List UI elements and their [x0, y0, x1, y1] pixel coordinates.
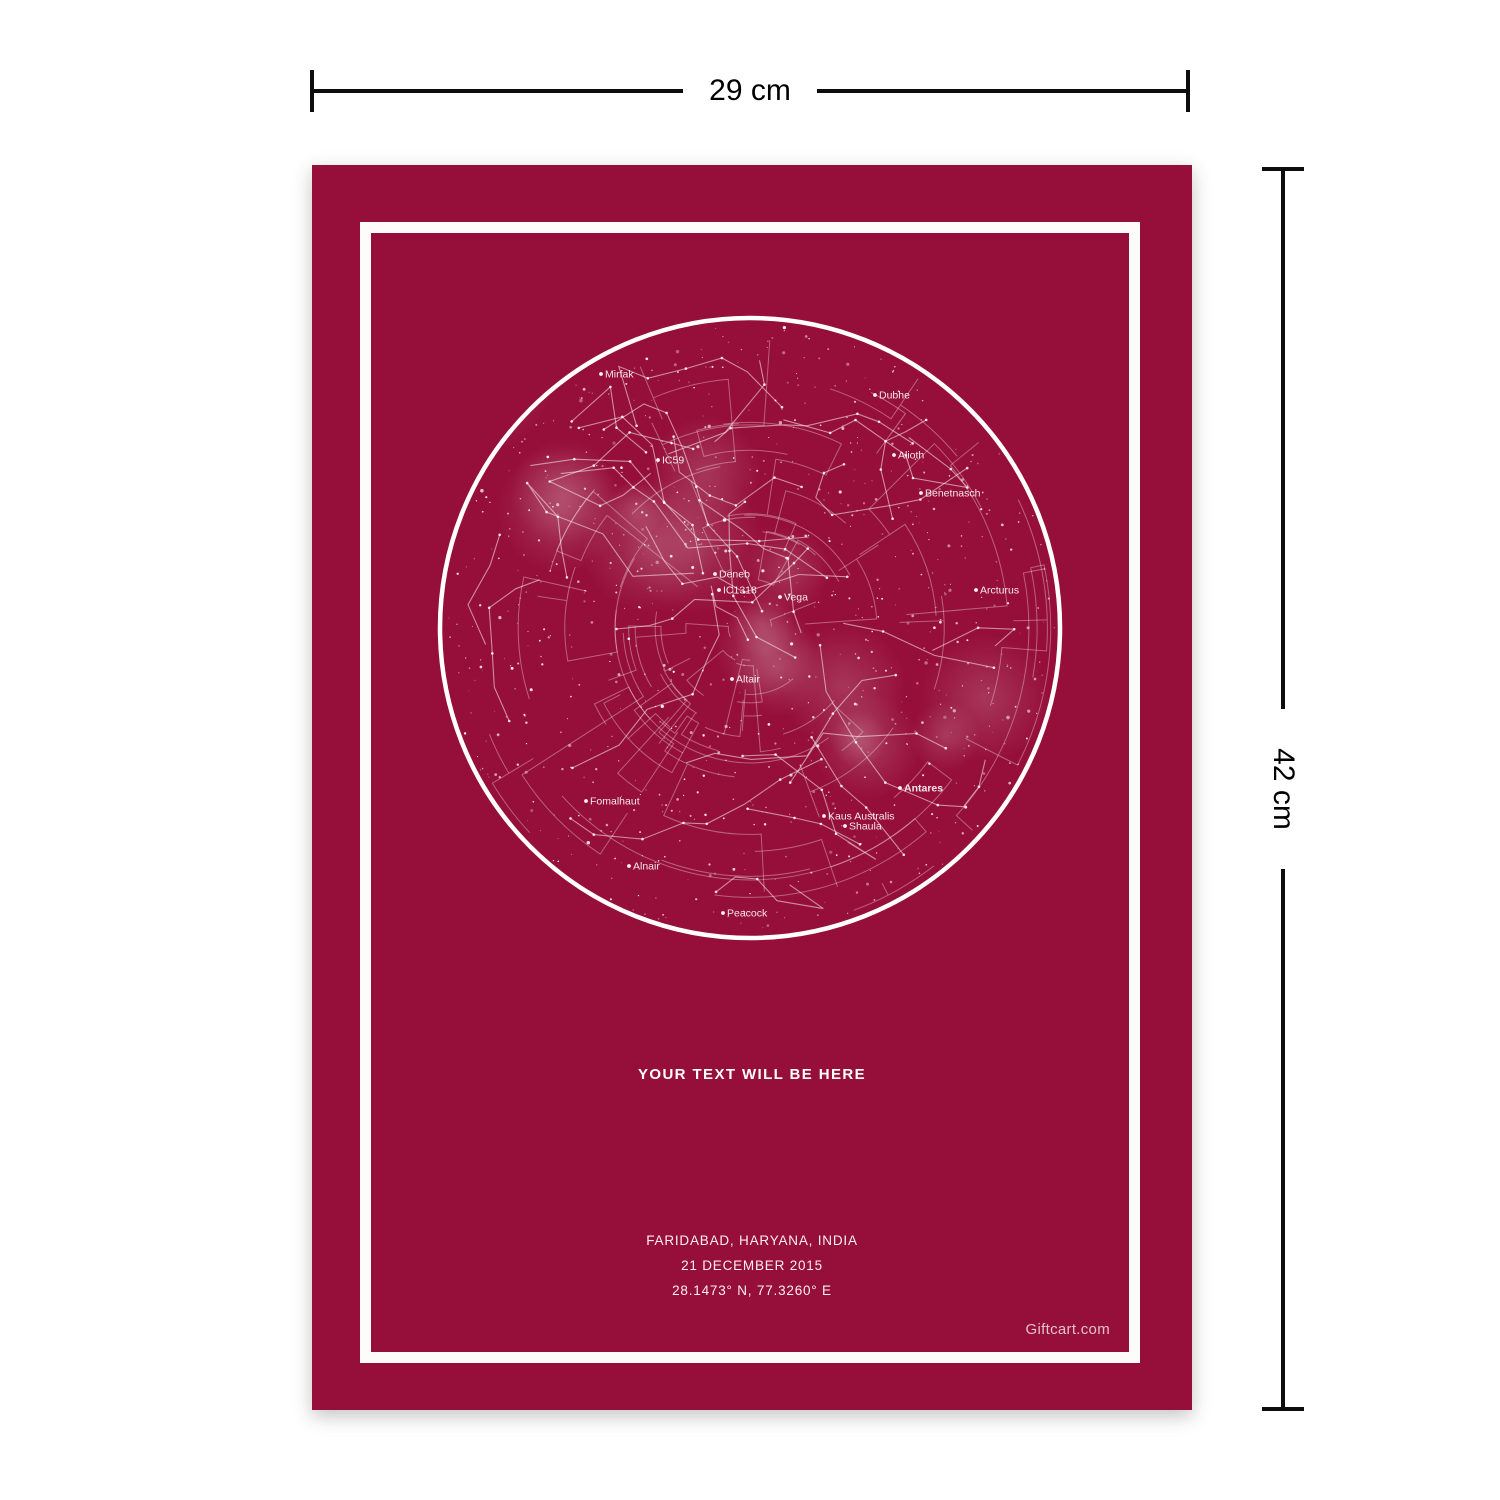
- height-dimension: 42 cm: [1262, 167, 1304, 1411]
- star-field: MirfakDubheIC59AliothBenetnaschDenebIC13…: [420, 311, 1055, 928]
- star-label: IC59: [662, 455, 684, 467]
- width-dimension-label: 29 cm: [683, 70, 817, 112]
- poster-location-block: FARIDABAD, HARYANA, INDIA 21 DECEMBER 20…: [312, 1228, 1192, 1303]
- dimension-line: [1281, 171, 1285, 709]
- width-dimension: 29 cm: [310, 70, 1190, 112]
- location-coordinates: 28.1473° N, 77.3260° E: [312, 1278, 1192, 1303]
- star-label: Antares: [904, 783, 943, 795]
- star-label: Alnair: [633, 861, 660, 873]
- dimension-tick-bottom: [1262, 1407, 1304, 1411]
- star-label: Altair: [736, 674, 760, 686]
- product-screenshot: 29 cm 42 cm MirfakDubheIC59AliothBenetna…: [0, 0, 1500, 1500]
- location-date: 21 DECEMBER 2015: [312, 1253, 1192, 1278]
- dimension-line: [1281, 869, 1285, 1407]
- star-label: Arcturus: [980, 585, 1019, 597]
- star-map-circle: MirfakDubheIC59AliothBenetnaschDenebIC13…: [420, 298, 1080, 958]
- dimension-tick-right: [1186, 70, 1190, 112]
- star-label: IC1318: [723, 585, 757, 597]
- brand-watermark: Giftcart.com: [1026, 1321, 1110, 1338]
- location-place: FARIDABAD, HARYANA, INDIA: [312, 1228, 1192, 1253]
- star-label: Shaula: [849, 821, 882, 833]
- poster-custom-text: YOUR TEXT WILL BE HERE: [312, 1066, 1192, 1083]
- star-label: Fomalhaut: [590, 796, 640, 808]
- star-label: Peacock: [727, 908, 768, 920]
- dimension-line: [817, 89, 1186, 93]
- dimension-line: [314, 89, 683, 93]
- height-dimension-label: 42 cm: [1242, 709, 1324, 869]
- star-label: Benetnasch: [925, 488, 981, 500]
- star-label: Dubhe: [879, 390, 910, 402]
- star-label: Alioth: [898, 450, 924, 462]
- star-label: Vega: [784, 592, 808, 604]
- star-label: Mirfak: [605, 369, 634, 381]
- star-label: Deneb: [719, 569, 750, 581]
- star-map-poster: MirfakDubheIC59AliothBenetnaschDenebIC13…: [312, 165, 1192, 1410]
